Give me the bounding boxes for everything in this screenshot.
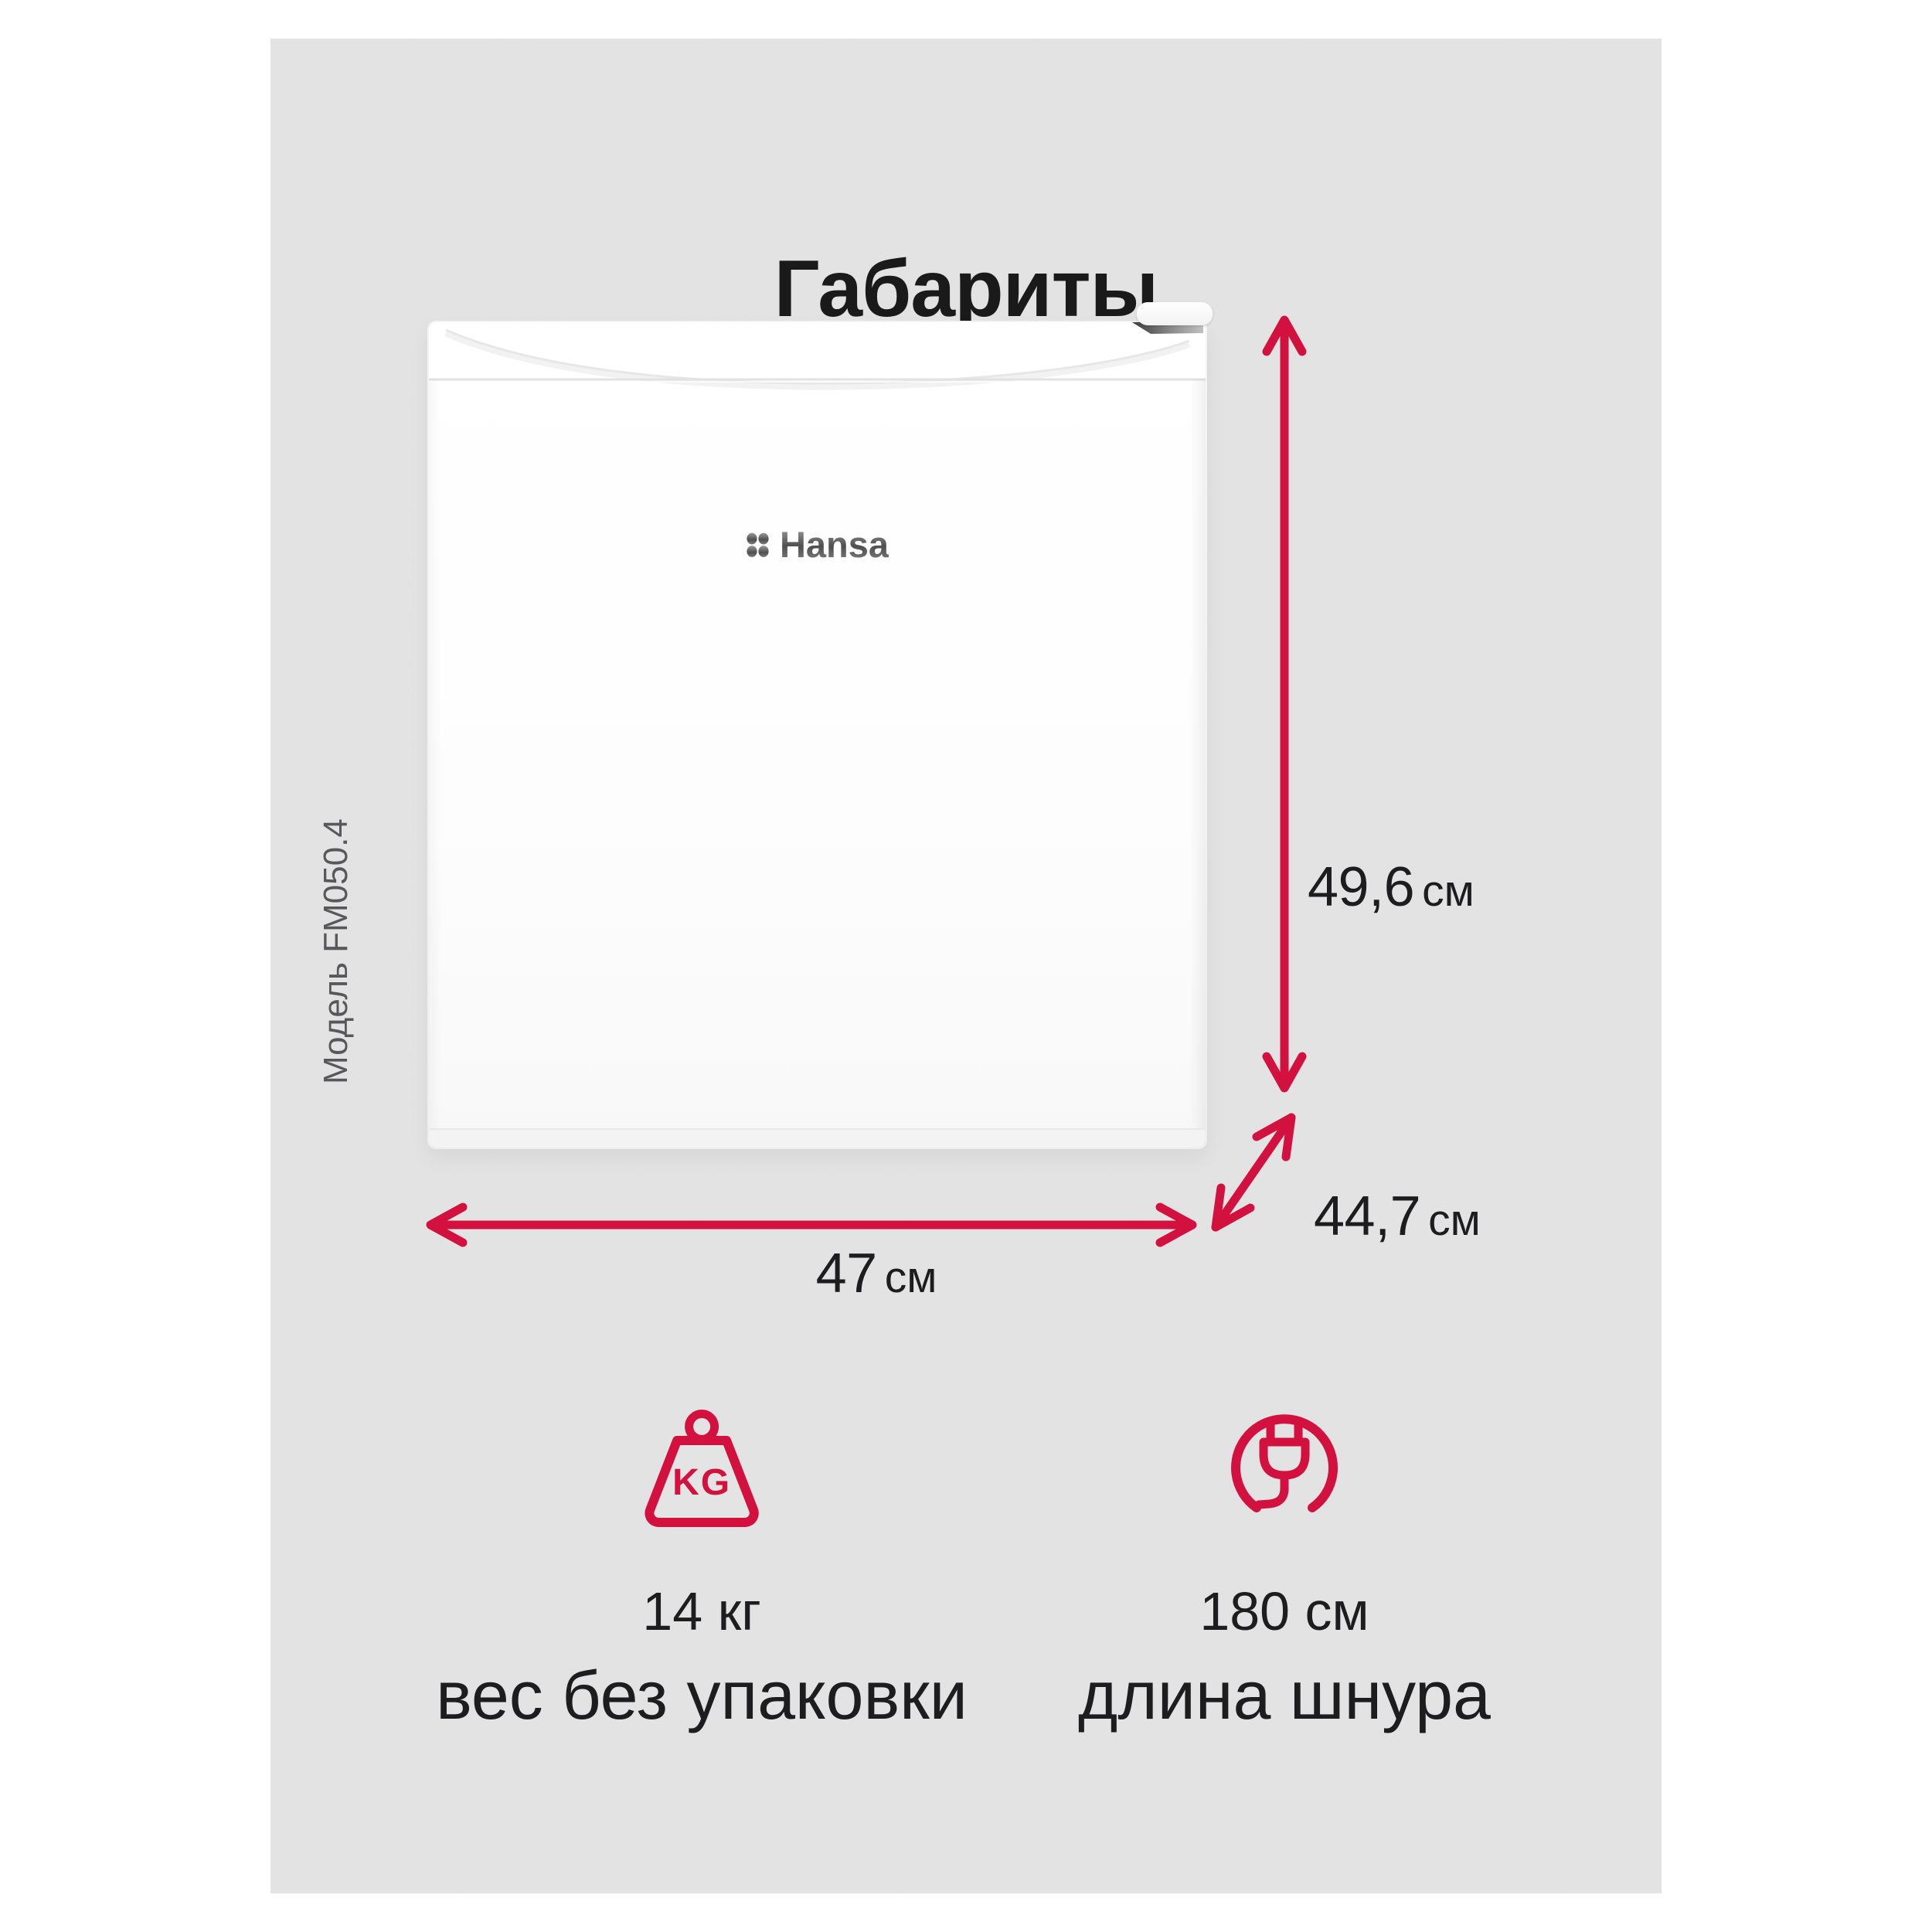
cord-value: 180 см: [1199, 1584, 1369, 1638]
weight-value: 14 кг: [642, 1584, 760, 1638]
height-arrow: [1267, 320, 1302, 1088]
hansa-logo: Hansa: [427, 526, 1207, 563]
fridge-details: [427, 321, 1207, 1149]
cord-feature: 180 см длина шнура: [1078, 1408, 1491, 1730]
width-dimension-label: 47см: [816, 1246, 937, 1301]
weight-icon-kg-text: KG: [672, 1462, 731, 1503]
width-unit: см: [885, 1253, 937, 1302]
fridge-image: Hansa: [427, 321, 1207, 1149]
cord-caption: длина шнура: [1078, 1662, 1491, 1730]
depth-value: 44,7: [1314, 1185, 1420, 1247]
background-panel: Габариты Модель FM050.4: [270, 39, 1662, 1893]
width-value: 47: [816, 1243, 877, 1304]
fridge-hinge-cap: [1137, 302, 1213, 325]
depth-arrow: [1216, 1117, 1291, 1227]
depth-unit: см: [1428, 1196, 1481, 1245]
weight-kg-icon: KG: [639, 1408, 764, 1533]
height-dimension-label: 49,6см: [1308, 859, 1475, 915]
width-arrow: [430, 1207, 1192, 1243]
depth-dimension-label: 44,7см: [1314, 1189, 1481, 1244]
power-plug-icon: [1219, 1402, 1350, 1533]
model-label-text: Модель FM050.4: [317, 818, 355, 1084]
hansa-logo-dots-icon: [746, 532, 770, 558]
height-value: 49,6: [1308, 856, 1414, 918]
hansa-logo-text: Hansa: [780, 526, 889, 563]
weight-caption: вес без упаковки: [436, 1662, 968, 1730]
weight-feature: KG 14 кг вес без упаковки: [436, 1408, 968, 1730]
height-unit: см: [1422, 866, 1475, 916]
page-title: Габариты: [270, 249, 1662, 329]
